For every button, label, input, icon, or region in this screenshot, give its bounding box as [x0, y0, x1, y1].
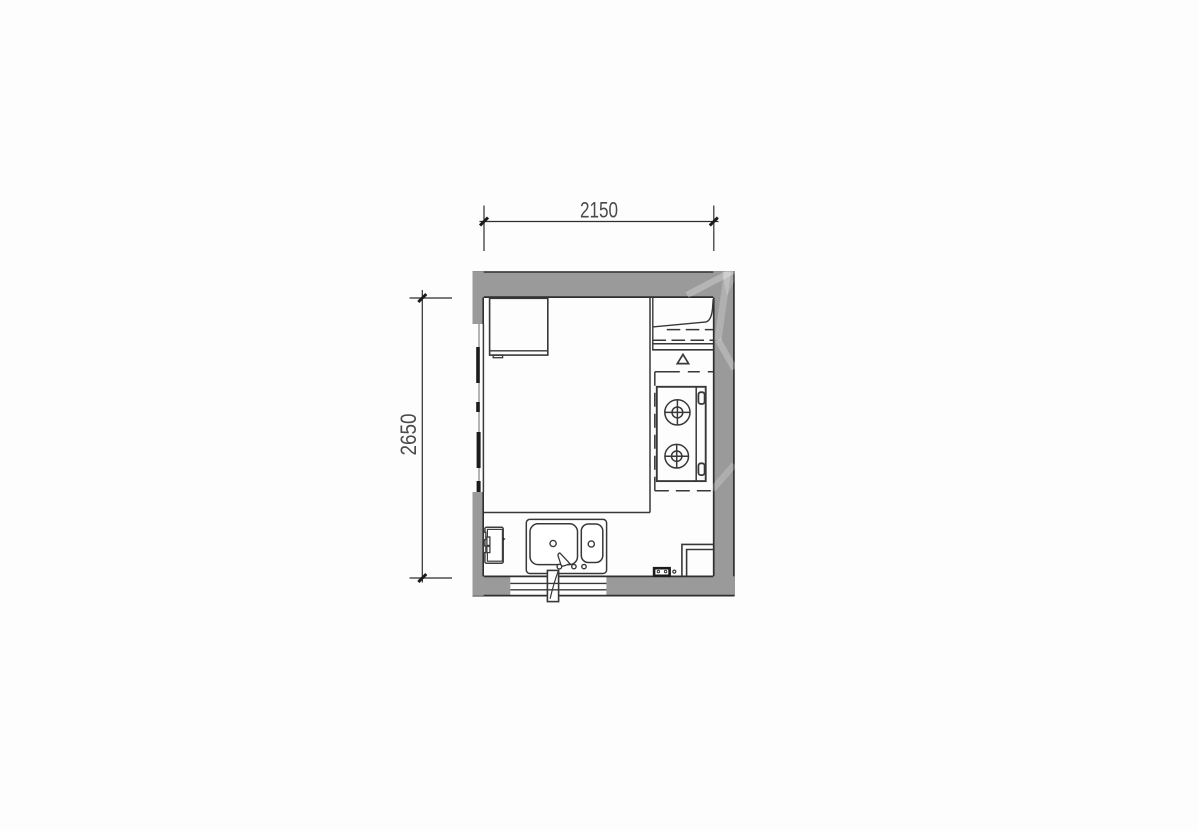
svg-text:2650: 2650	[396, 414, 421, 456]
svg-text:2150: 2150	[580, 197, 618, 222]
